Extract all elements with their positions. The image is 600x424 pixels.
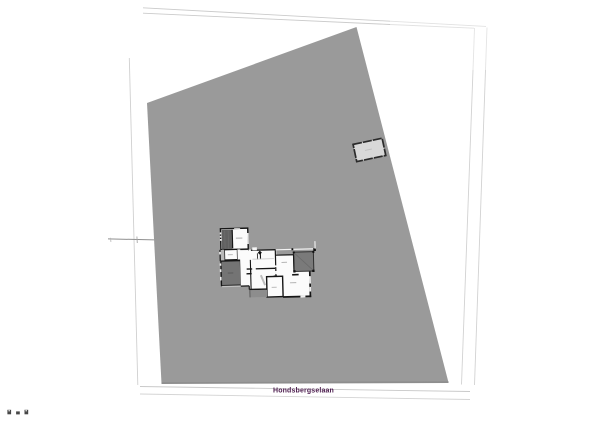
svg-text:Hondsbergselaan: Hondsbergselaan [273,387,334,394]
